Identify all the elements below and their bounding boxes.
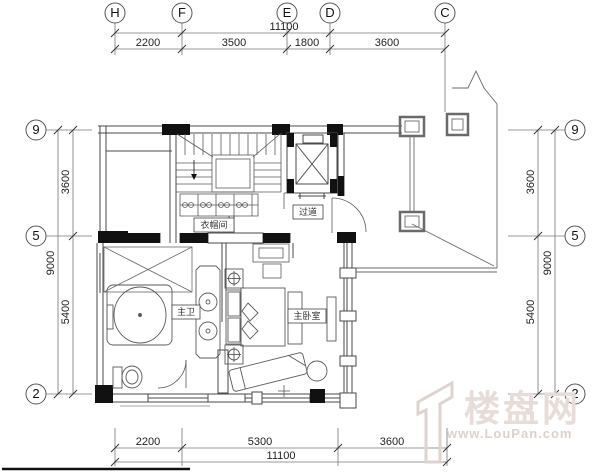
mattress — [241, 288, 285, 346]
axis-label-f: F — [178, 5, 186, 20]
elevator — [287, 133, 337, 199]
dim-bottom-total: 11100 — [267, 450, 296, 462]
dim-bottom-seg1: 2200 — [136, 436, 160, 448]
staircase — [176, 133, 281, 192]
dim-right-seg2: 5400 — [525, 300, 537, 324]
dim-top-seg1: 2200 — [136, 37, 160, 49]
bathtub — [107, 285, 172, 345]
room-labels: 衣帽间 过道 主卫 主卧室 — [172, 205, 326, 323]
label-master-bathroom: 主卫 — [177, 306, 195, 317]
nightstand-1 — [225, 269, 243, 288]
dim-bottom-seg2: 5300 — [248, 436, 272, 448]
dim-top-seg4: 3600 — [375, 37, 399, 49]
chaise-lounge — [228, 352, 307, 392]
axis-label-5-right: 5 — [571, 228, 578, 243]
label-corridor: 过道 — [299, 206, 317, 217]
axis-label-9-right: 9 — [571, 122, 578, 137]
dim-top-total: 11100 — [270, 21, 299, 33]
sink-basin-1 — [199, 293, 217, 311]
sink-basin-2 — [199, 322, 217, 340]
floor-plan-page: H F E D C 9 5 2 9 5 2 — [0, 0, 615, 472]
pillow-2 — [228, 318, 240, 342]
stair-exit-door — [284, 193, 290, 209]
axis-label-9-left: 9 — [32, 122, 39, 137]
dim-top-seg3: 1800 — [295, 37, 319, 49]
toilet — [113, 366, 142, 388]
pillow-1 — [228, 292, 240, 316]
dim-top-seg2: 3500 — [222, 37, 246, 49]
doors — [158, 198, 366, 388]
blanket-fold-2 — [242, 321, 258, 339]
dim-right-seg1: 3600 — [525, 170, 537, 194]
toilet-door-swing — [158, 360, 186, 388]
dim-left-seg1: 3600 — [60, 170, 72, 194]
axis-label-d: D — [325, 5, 334, 20]
axis-label-5-left: 5 — [32, 228, 39, 243]
dresser — [253, 244, 289, 278]
dim-bottom-seg3: 3600 — [380, 436, 404, 448]
terrace — [356, 71, 497, 272]
roof-slope-line — [412, 224, 494, 266]
axis-label-2-left: 2 — [32, 386, 39, 401]
floor-plan-canvas: H F E D C 9 5 2 9 5 2 — [0, 0, 615, 472]
floor-lamp-cross — [278, 385, 290, 397]
window-mullions — [252, 268, 356, 408]
bathtub-faucet — [107, 305, 113, 329]
dresser-stool — [263, 264, 281, 278]
watermark-site-url: www.LouPan.com — [446, 426, 572, 441]
label-cloakroom: 衣帽间 — [200, 219, 227, 230]
tv-cabinet — [327, 297, 336, 341]
label-master-bedroom: 主卧室 — [293, 310, 320, 321]
axis-label-e: E — [283, 5, 292, 20]
wardrobe-unit — [180, 194, 258, 216]
parapet-break-arrow — [452, 71, 497, 104]
axis-label-c: C — [440, 5, 449, 20]
watermark-site-name: 楼盘网 — [464, 388, 581, 429]
bedroom-entry-door-swing — [332, 198, 366, 232]
dim-left-total: 9000 — [45, 251, 57, 275]
axis-label-h: H — [110, 5, 119, 20]
blanket-fold-1 — [242, 303, 258, 321]
watermark: 楼盘网 www.LouPan.com — [418, 383, 581, 462]
side-table — [307, 361, 327, 381]
dim-left-seg2: 5400 — [60, 300, 72, 324]
dim-right-total: 9000 — [542, 251, 554, 275]
